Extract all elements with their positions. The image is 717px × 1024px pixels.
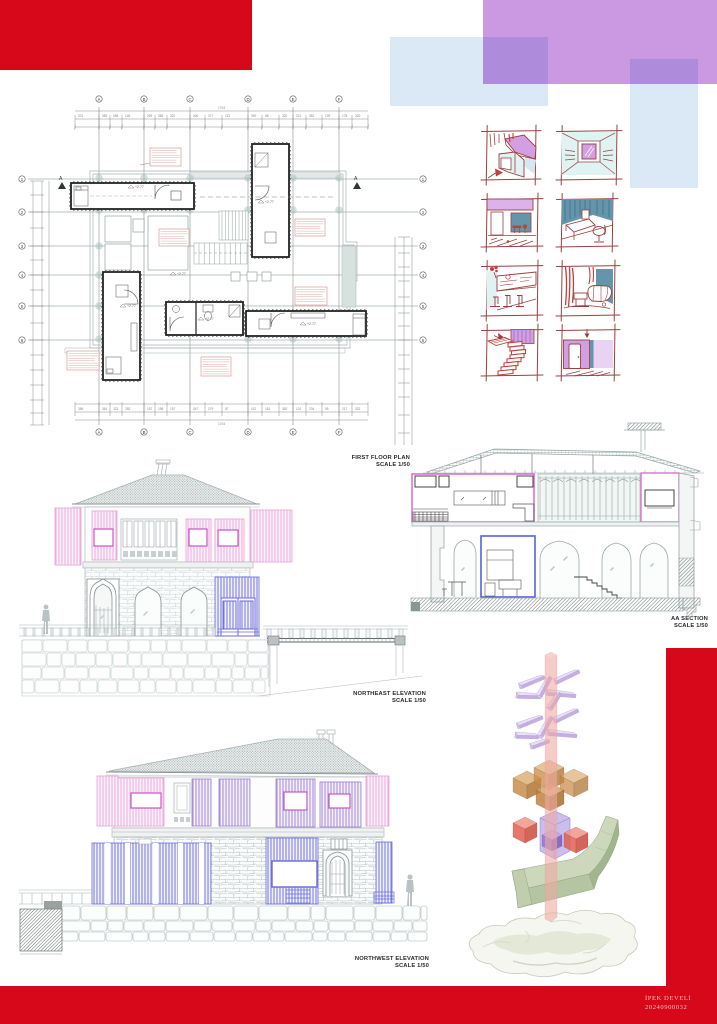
svg-text:347: 347 bbox=[193, 407, 199, 411]
svg-text:269: 269 bbox=[147, 114, 153, 118]
svg-text:+2.77: +2.77 bbox=[265, 200, 274, 204]
svg-text:1704: 1704 bbox=[218, 106, 225, 110]
svg-text:178: 178 bbox=[342, 114, 348, 118]
svg-text:212: 212 bbox=[296, 114, 302, 118]
svg-text:112: 112 bbox=[251, 407, 256, 411]
svg-text:87: 87 bbox=[225, 407, 229, 411]
svg-text:+2.77: +2.77 bbox=[135, 185, 144, 189]
svg-text:161: 161 bbox=[265, 407, 271, 411]
svg-text:A: A bbox=[98, 97, 101, 102]
svg-text:390: 390 bbox=[251, 114, 257, 118]
svg-text:320: 320 bbox=[282, 114, 288, 118]
svg-text:362: 362 bbox=[309, 114, 315, 118]
svg-text:F: F bbox=[338, 430, 341, 435]
svg-text:D: D bbox=[246, 97, 249, 102]
svg-text:358: 358 bbox=[113, 114, 119, 118]
svg-text:279: 279 bbox=[208, 407, 214, 411]
svg-text:400: 400 bbox=[193, 114, 199, 118]
svg-text:234: 234 bbox=[309, 407, 315, 411]
svg-text:E: E bbox=[292, 97, 295, 102]
svg-text:157: 157 bbox=[170, 407, 176, 411]
svg-text:C: C bbox=[188, 97, 191, 102]
svg-text:C: C bbox=[188, 430, 191, 435]
svg-text:201: 201 bbox=[78, 114, 84, 118]
svg-text:D: D bbox=[246, 430, 249, 435]
svg-text:113: 113 bbox=[225, 114, 230, 118]
svg-text:283: 283 bbox=[125, 407, 131, 411]
svg-text:1704: 1704 bbox=[218, 422, 225, 426]
svg-text:B: B bbox=[143, 97, 146, 102]
svg-text:377: 377 bbox=[208, 114, 214, 118]
svg-text:B: B bbox=[143, 430, 146, 435]
svg-text:199: 199 bbox=[325, 114, 331, 118]
svg-text:A: A bbox=[98, 430, 101, 435]
svg-text:F: F bbox=[338, 97, 341, 102]
svg-text:95: 95 bbox=[325, 407, 329, 411]
svg-text:198: 198 bbox=[158, 407, 164, 411]
svg-text:382: 382 bbox=[282, 407, 288, 411]
svg-text:+2.77: +2.77 bbox=[307, 322, 316, 326]
svg-text:320: 320 bbox=[355, 114, 361, 118]
svg-text:383: 383 bbox=[102, 114, 108, 118]
svg-text:146: 146 bbox=[125, 114, 131, 118]
svg-text:217: 217 bbox=[342, 407, 348, 411]
svg-text:157: 157 bbox=[147, 407, 153, 411]
svg-text:86: 86 bbox=[265, 114, 269, 118]
svg-text:356: 356 bbox=[78, 407, 84, 411]
svg-text:E: E bbox=[292, 430, 295, 435]
svg-text:389: 389 bbox=[158, 114, 164, 118]
svg-text:322: 322 bbox=[355, 407, 361, 411]
svg-text:+2.77: +2.77 bbox=[205, 317, 214, 321]
svg-text:361: 361 bbox=[102, 407, 108, 411]
svg-text:323: 323 bbox=[113, 407, 119, 411]
svg-text:322: 322 bbox=[170, 114, 176, 118]
svg-text:+2.77: +2.77 bbox=[177, 272, 186, 276]
svg-text:101: 101 bbox=[296, 407, 302, 411]
svg-text:+2.77: +2.77 bbox=[127, 304, 136, 308]
